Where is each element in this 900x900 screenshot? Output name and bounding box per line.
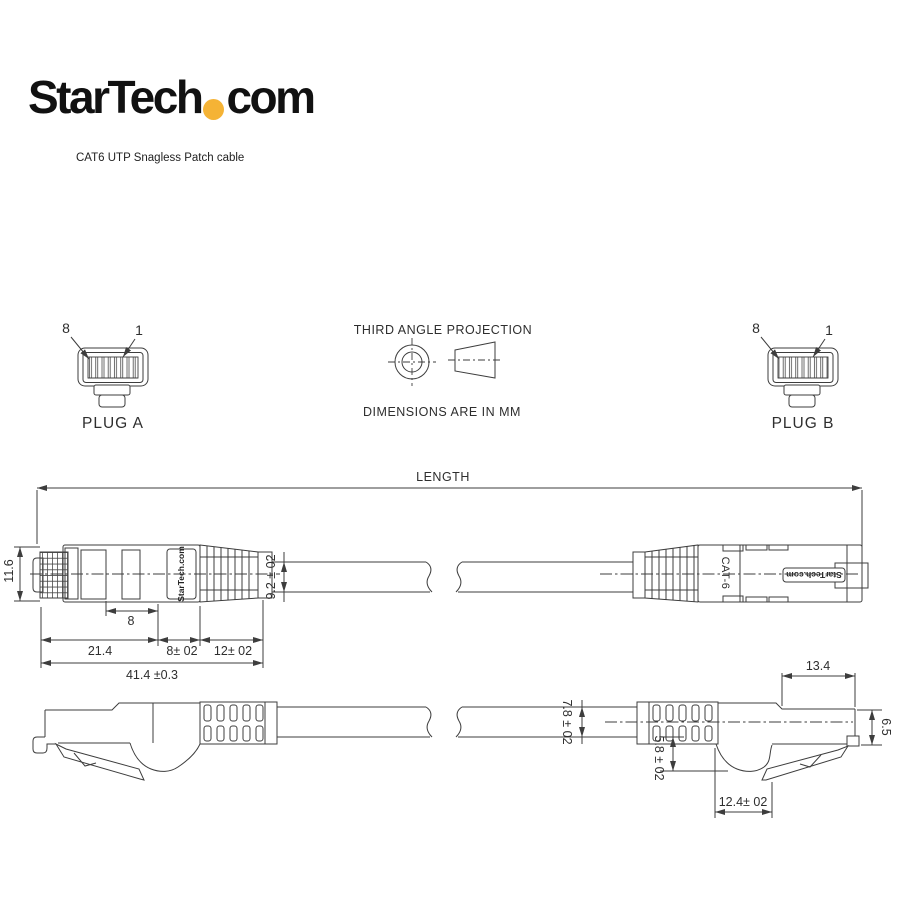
left-latch-lever <box>56 744 144 780</box>
left-plug-contacts <box>40 552 68 598</box>
dim-head-length: 13.4 <box>806 659 830 673</box>
side-view-dimensions: 7.8 ± 02 13.4 6.5 5.8 ± 02 12.4± 02 <box>560 659 893 818</box>
dim-bell-height: 5.8 ± 02 <box>652 735 666 780</box>
dim-body-length: 21.4 <box>88 644 112 658</box>
plug-b-label: PLUG B <box>772 415 835 432</box>
dim-segment-12: 12± 02 <box>214 644 252 658</box>
dim-bell-length: 12.4± 02 <box>719 795 768 809</box>
plug-b-pin8-label: 8 <box>752 320 760 336</box>
plug-a-label: PLUG A <box>82 415 144 432</box>
projection-title: THIRD ANGLE PROJECTION <box>354 323 532 337</box>
technical-drawing: 8 1 PLUG A 8 1 PLUG B THIRD ANGLE PROJEC… <box>0 0 900 900</box>
left-boot-bell <box>130 743 200 771</box>
dim-plug-width: 11.6 <box>2 559 16 582</box>
third-angle-projection-symbol: THIRD ANGLE PROJECTION DIMENSIONS ARE IN… <box>354 323 532 419</box>
plug-b-pin1-label: 1 <box>825 322 833 338</box>
dim-cable-diameter: 7.8 ± 02 <box>560 699 574 744</box>
dim-boot-diameter: 9.2 ± 02 <box>264 554 278 599</box>
dim-overall-length: 41.4 ±0.3 <box>126 668 178 682</box>
cable-side-view <box>33 702 859 780</box>
plug-b-front-view: 8 1 PLUG B <box>752 320 838 432</box>
dim-contact-length: 8 <box>128 614 135 628</box>
right-boot-bell <box>716 744 772 771</box>
plug-b-pins <box>778 357 828 378</box>
dim-head-height: 6.5 <box>879 718 893 735</box>
cat6-marking: CAT-6 <box>719 557 731 590</box>
plug-a-pin8-label: 8 <box>62 320 70 336</box>
plug-a-front-view: 8 1 PLUG A <box>62 320 148 432</box>
right-plug-brand-marking: StarTech.com <box>786 570 842 580</box>
dim-segment-8: 8± 02 <box>166 644 197 658</box>
plug-a-pins <box>88 357 138 378</box>
right-latch-lever <box>762 746 848 780</box>
cable-top-view: StarTech.com CAT-6 StarTech.com <box>30 545 868 602</box>
plug-a-pin1-label: 1 <box>135 322 143 338</box>
length-dimension: LENGTH <box>37 470 862 549</box>
units-note: DIMENSIONS ARE IN MM <box>363 405 521 419</box>
length-label: LENGTH <box>416 470 470 484</box>
